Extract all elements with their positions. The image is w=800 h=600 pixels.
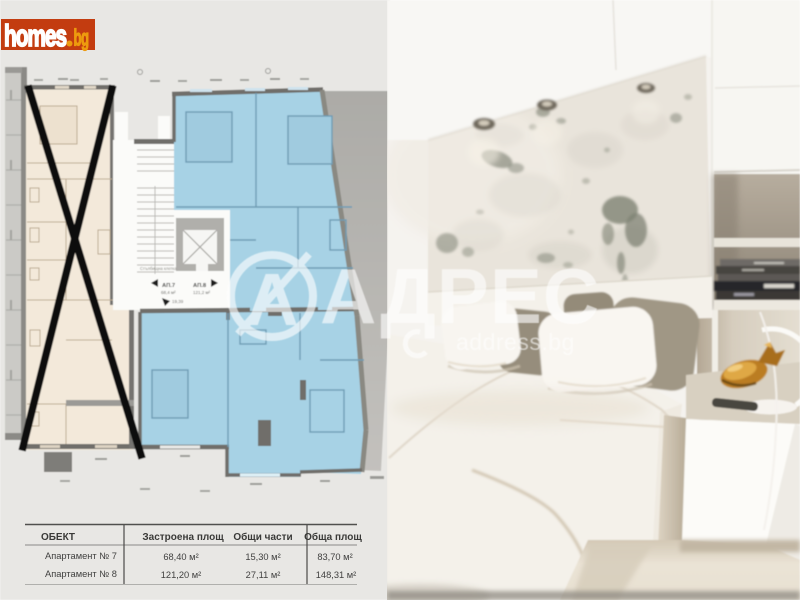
svg-text:148,31 м²: 148,31 м² (316, 570, 357, 580)
svg-text:address.bg: address.bg (456, 329, 575, 355)
svg-text:ОБЕКТ: ОБЕКТ (41, 532, 75, 543)
svg-text:68,4 м²: 68,4 м² (161, 290, 176, 295)
svg-text:АДРЕС: АДРЕС (320, 252, 600, 340)
svg-text:83,70 м²: 83,70 м² (317, 552, 352, 562)
svg-text:121,2 м²: 121,2 м² (193, 290, 211, 295)
svg-text:27,11 м²: 27,11 м² (246, 570, 281, 580)
svg-text:68,40 м²: 68,40 м² (163, 552, 198, 562)
svg-text:Апартамент № 8: Апартамент № 8 (45, 569, 117, 579)
svg-text:19,39: 19,39 (172, 299, 184, 304)
svg-text:АП.8: АП.8 (193, 283, 207, 289)
svg-text:homes: homes (4, 18, 66, 53)
svg-text:bg: bg (74, 25, 89, 51)
svg-text:Застроена площ: Застроена площ (142, 532, 224, 543)
svg-text:Общи части: Общи части (233, 531, 292, 543)
svg-text:АП.7: АП.7 (162, 283, 175, 289)
svg-text:Обща площ: Обща площ (304, 531, 362, 543)
svg-text:121,20 м²: 121,20 м² (161, 570, 202, 580)
svg-text:Стълбищна клетка: Стълбищна клетка (140, 266, 177, 271)
svg-text:Апартамент № 7: Апартамент № 7 (45, 551, 117, 561)
svg-text:15,30 м²: 15,30 м² (245, 552, 280, 562)
